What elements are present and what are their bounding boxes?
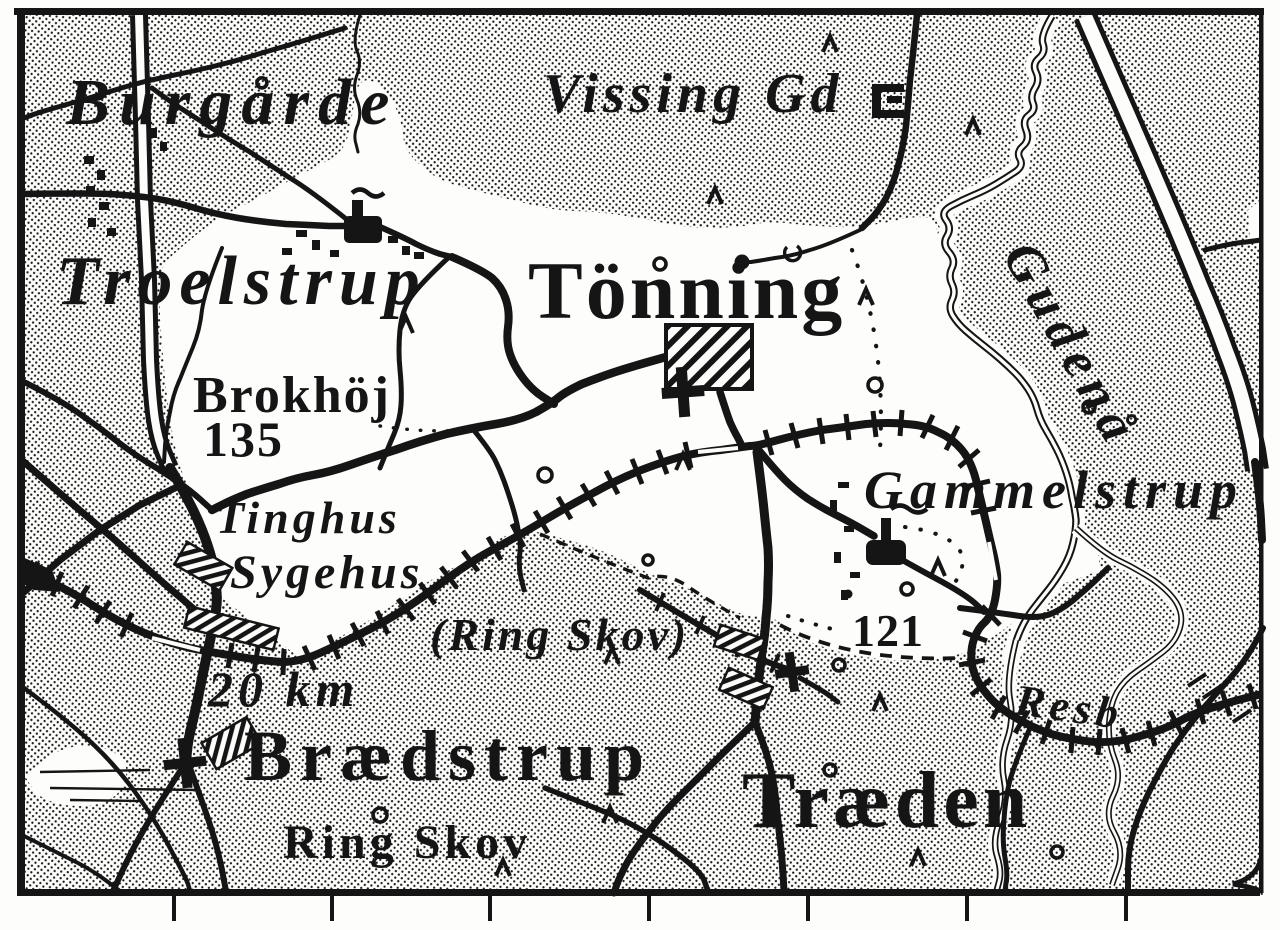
svg-text:Tinghus: Tinghus (216, 492, 401, 543)
svg-text:Troelstrup: Troelstrup (56, 243, 427, 320)
svg-text:20 km: 20 km (207, 661, 359, 717)
svg-text:Vissing Gd: Vissing Gd (543, 63, 844, 125)
svg-text:Sygehus: Sygehus (230, 546, 423, 599)
svg-text:Træden: Træden (742, 757, 1031, 845)
svg-text:Gammelstrup: Gammelstrup (864, 460, 1244, 520)
svg-text:Brædstrup: Brædstrup (244, 716, 652, 796)
svg-text:Burgårde: Burgårde (65, 66, 398, 139)
svg-text:135: 135 (203, 411, 284, 467)
svg-text:(Ring Skov): (Ring Skov) (430, 609, 689, 660)
svg-text:Tönning: Tönning (528, 245, 845, 336)
svg-text:121: 121 (852, 605, 924, 656)
svg-text:Ring Skov: Ring Skov (283, 816, 531, 869)
